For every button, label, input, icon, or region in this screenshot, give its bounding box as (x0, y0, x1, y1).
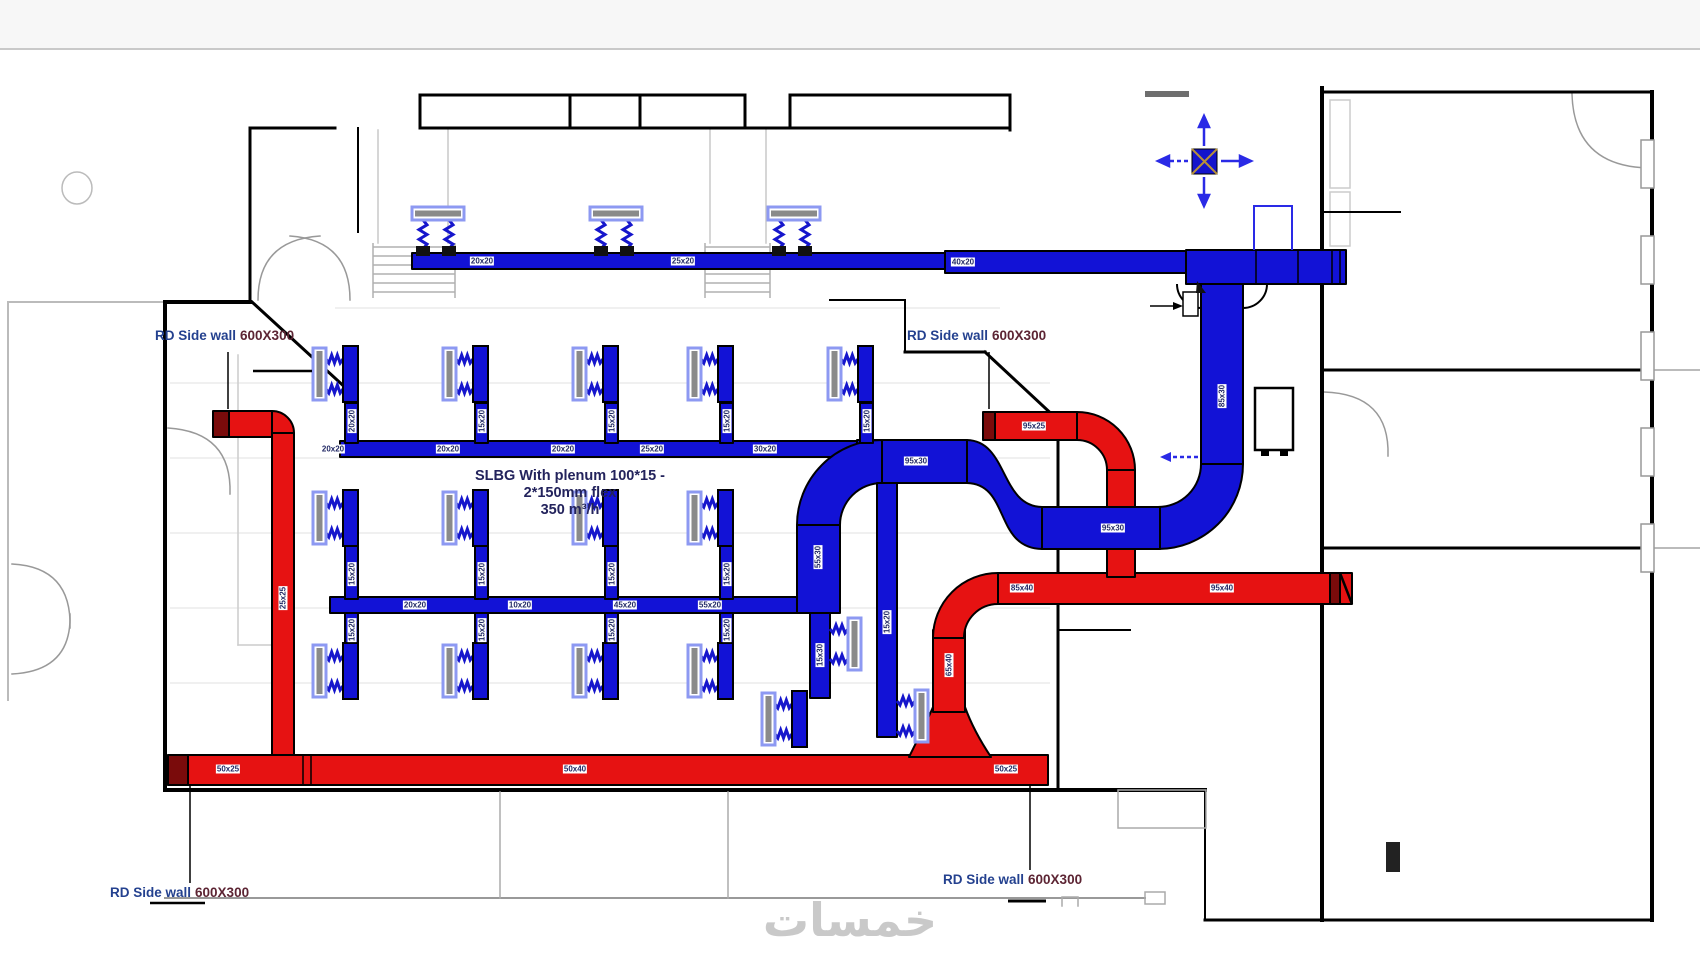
floorplan-canvas (0, 0, 1700, 970)
slot-diffuser-icon (412, 207, 464, 256)
slot-diffuser-icon (313, 346, 358, 402)
return-grille-icon (168, 755, 188, 785)
slot-diffuser-icon (573, 490, 618, 546)
stairs-icon (373, 243, 770, 298)
slot-diffuser-icon (897, 690, 928, 742)
gray-bar (1145, 91, 1189, 97)
stair-rails (378, 130, 766, 243)
slot-diffuser-icon (830, 618, 861, 670)
column-circle (62, 172, 92, 204)
slot-diffuser-icon (313, 490, 358, 546)
slot-diffuser-icon (768, 207, 820, 256)
slot-diffuser-icon (443, 643, 488, 699)
flow-arrow-icon (1160, 452, 1198, 462)
floorplan-page: SLBG With plenum 100*15 - 2*150mm flex 3… (0, 0, 1700, 970)
return-grille-icon (983, 412, 995, 440)
slot-diffuser-icon (688, 490, 733, 546)
shaft-rect (1254, 206, 1292, 250)
slot-diffuser-icon (828, 346, 873, 402)
slot-diffuser-icon (688, 643, 733, 699)
slot-diffuser-icon (573, 346, 618, 402)
fixture-box (1386, 842, 1400, 872)
slot-diffuser-icon (688, 346, 733, 402)
ceiling-diffuser-4way-icon (1158, 116, 1251, 206)
top-bar (0, 0, 1700, 50)
slot-diffuser-icon (313, 643, 358, 699)
slot-diffuser-icon (590, 207, 642, 256)
equipment-box (1255, 388, 1293, 456)
slot-diffuser-icon (573, 643, 618, 699)
walls-group (8, 88, 1700, 920)
slot-diffuser-icon (762, 691, 807, 747)
slot-diffuser-icon (443, 346, 488, 402)
return-grille-icon (213, 411, 229, 437)
slot-diffuser-icon (443, 490, 488, 546)
